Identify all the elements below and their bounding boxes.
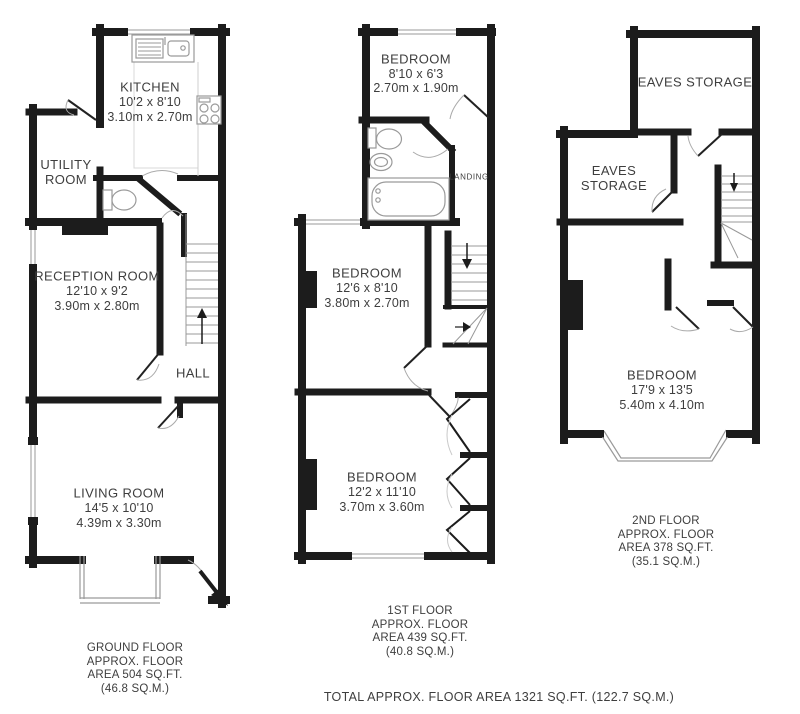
- room-dims-metric: 2.70m x 1.90m: [373, 81, 458, 95]
- room-name-bedroom-main: BEDROOM: [627, 368, 697, 383]
- total-floor-area-label: TOTAL APPROX. FLOOR AREA 1321 SQ.FT. (12…: [324, 690, 674, 704]
- room-dims-metric: 4.39m x 3.30m: [76, 516, 161, 530]
- first-floor-area-label: 1ST FLOOR APPROX. FLOOR AREA 439 SQ.FT. …: [372, 605, 469, 659]
- chimney-breast: [306, 459, 317, 510]
- floorplan-canvas: KITCHEN 10'2 x 8'10 3.10m x 2.70m UTILIT…: [0, 0, 800, 714]
- room-dims-imperial: 10'2 x 8'10: [119, 95, 181, 109]
- room-dims-metric: 3.80m x 2.70m: [324, 296, 409, 310]
- room-name-eaves-left: EAVES STORAGE: [573, 163, 655, 193]
- stairs-turn-arrow-icon: [463, 322, 471, 332]
- room-name-hall: HALL: [176, 366, 210, 381]
- room-dims-metric: 5.40m x 4.10m: [619, 398, 704, 412]
- bay-wall-stub: [596, 430, 604, 437]
- second-floor-area-label: 2ND FLOOR APPROX. FLOOR AREA 378 SQ.FT. …: [618, 515, 715, 569]
- wash-basin-icon: [370, 154, 392, 171]
- room-dims-imperial: 8'10 x 6'3: [389, 67, 444, 81]
- toilet-icon-first: [368, 128, 402, 149]
- room-name-living: LIVING ROOM: [73, 486, 164, 501]
- room-dims-metric: 3.70m x 3.60m: [339, 500, 424, 514]
- staircase-second: [721, 173, 752, 258]
- room-name-landing: LANDING: [449, 173, 489, 182]
- room-name-eaves-top: EAVES STORAGE: [638, 75, 753, 90]
- room-name-bedroom-rear: BEDROOM: [347, 470, 417, 485]
- room-dims-metric: 3.90m x 2.80m: [54, 299, 139, 313]
- room-dims-imperial: 14'5 x 10'10: [84, 501, 153, 515]
- staircase-first: [451, 243, 487, 344]
- room-dims-imperial: 12'10 x 9'2: [66, 284, 128, 298]
- bay-window-second: [600, 430, 730, 461]
- room-name-bedroom-mid: BEDROOM: [332, 266, 402, 281]
- room-dims-metric: 3.10m x 2.70m: [107, 110, 192, 124]
- room-dims-imperial: 12'6 x 8'10: [336, 281, 398, 295]
- bay-window-ground: [80, 556, 160, 603]
- stairs-down-arrow-icon: [730, 183, 738, 192]
- stairs-up-arrow-icon: [197, 308, 207, 318]
- staircase-ground: [186, 214, 218, 346]
- hob-icon: [197, 96, 221, 124]
- chimney-breast: [62, 226, 108, 235]
- room-name-utility: UTILITY ROOM: [25, 157, 107, 187]
- cupboard-doors: [447, 399, 470, 553]
- bathtub-icon: [368, 178, 449, 220]
- bay-wall-stub: [726, 430, 734, 437]
- ground-floor-area-label: GROUND FLOOR APPROX. FLOOR AREA 504 SQ.F…: [87, 642, 184, 696]
- room-name-bedroom-front: BEDROOM: [381, 52, 451, 67]
- room-name-kitchen: KITCHEN: [120, 80, 180, 95]
- chimney-breast: [306, 271, 317, 308]
- toilet-icon-ground: [103, 190, 136, 210]
- room-name-reception: RECEPTION ROOM: [34, 269, 160, 284]
- room-dims-imperial: 12'2 x 11'10: [348, 485, 416, 499]
- room-dims-imperial: 17'9 x 13'5: [631, 383, 693, 397]
- chimney-breast: [568, 280, 583, 330]
